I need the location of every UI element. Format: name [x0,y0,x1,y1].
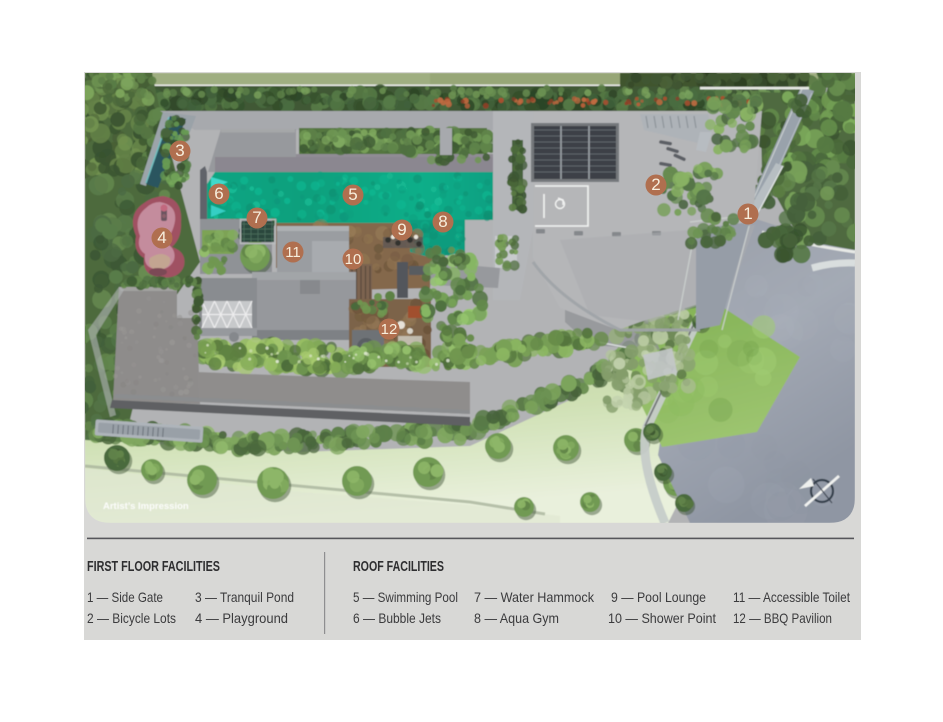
svg-text:8 — Aqua Gym: 8 — Aqua Gym [474,610,559,626]
svg-text:FIRST FLOOR FACILITIES: FIRST FLOOR FACILITIES [87,559,220,575]
svg-text:8: 8 [438,212,447,231]
svg-text:12: 12 [381,321,398,338]
svg-text:3 — Tranquil Pond: 3 — Tranquil Pond [195,589,294,605]
svg-text:10: 10 [345,251,362,268]
svg-text:6: 6 [214,184,223,203]
svg-text:7 — Water Hammock: 7 — Water Hammock [474,589,595,605]
svg-text:6 — Bubble Jets: 6 — Bubble Jets [353,610,441,626]
svg-text:9 — Pool Lounge: 9 — Pool Lounge [611,589,706,605]
svg-text:5 — Swimming Pool: 5 — Swimming Pool [353,589,458,605]
svg-text:7: 7 [252,208,261,227]
svg-text:2 — Bicycle Lots: 2 — Bicycle Lots [87,610,176,626]
svg-text:10 — Shower Point: 10 — Shower Point [608,610,716,626]
svg-text:9: 9 [397,220,406,239]
svg-text:Artist’s Impression: Artist’s Impression [103,501,189,512]
svg-text:2: 2 [651,175,660,194]
svg-text:11: 11 [285,244,301,261]
svg-text:11 — Accessible Toilet: 11 — Accessible Toilet [733,589,850,605]
svg-text:12 — BBQ Pavilion: 12 — BBQ Pavilion [733,610,832,626]
svg-text:4: 4 [157,228,166,247]
svg-text:3: 3 [175,141,184,160]
svg-text:5: 5 [348,185,357,204]
svg-text:1: 1 [743,204,752,223]
svg-text:ROOF FACILITIES: ROOF FACILITIES [353,559,444,575]
svg-text:4 — Playground: 4 — Playground [195,610,288,626]
svg-text:1 — Side Gate: 1 — Side Gate [87,589,163,605]
